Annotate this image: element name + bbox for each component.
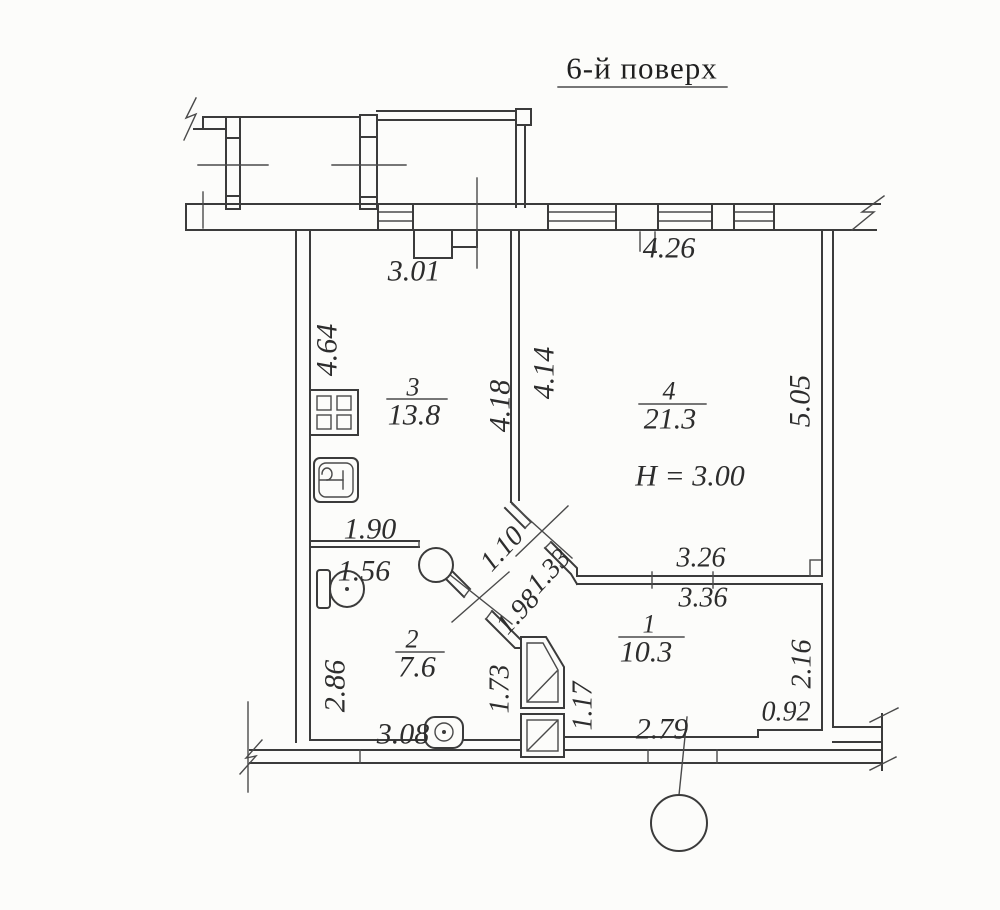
room4-number: 4 [663,377,676,406]
room4-ceiling-height: H = 3.00 [634,460,744,493]
glazing-corner [516,109,531,125]
break-symbol [184,98,196,140]
room3-area: 13.8 [388,399,441,432]
column-circle [419,548,453,582]
floor-plan-drawing: 6-й поверх [0,0,1000,910]
dim-1-73: 1.73 [485,665,516,714]
dim-3-26: 3.26 [676,543,726,574]
dim-2-79: 2.79 [636,713,689,746]
window [734,204,774,230]
dim-5-05: 5.05 [784,375,817,428]
stove-icon [310,390,358,435]
dim-4-26: 4.26 [643,232,696,265]
dim-1-17: 1.17 [568,681,599,731]
dim-4-64: 4.64 [311,324,344,377]
dim-1-90: 1.90 [344,513,397,546]
room2-area: 7.6 [398,651,436,684]
vent-shaft-lower [521,714,564,757]
dim-2-86: 2.86 [319,660,352,713]
dim-3-08: 3.08 [376,718,430,751]
dim-4-14: 4.14 [528,347,561,400]
break-symbol [240,740,262,774]
wall-pilaster [810,560,822,576]
room1-area: 10.3 [620,636,673,669]
break-symbol [852,196,884,230]
balconies [194,109,531,209]
page-title: 6-й поверх [566,51,717,86]
vent-shaft-upper [521,637,564,708]
room2-number: 2 [406,625,419,654]
sink-icon [314,458,358,502]
dim-3-01: 3.01 [387,255,441,288]
balcony-pier [360,115,377,209]
dim-1-10: 1.10 [474,521,530,578]
window [548,204,616,230]
dim-3-36: 3.36 [678,583,728,614]
dim-1-56: 1.56 [338,555,391,588]
dim-4-18: 4.18 [484,380,517,433]
washer-icon [425,717,463,748]
room-labels: 3 13.8 4 21.3 H = 3.00 1 10.3 2 7.6 [387,373,745,684]
room4-area: 21.3 [644,403,697,436]
dim-2-16: 2.16 [787,640,818,689]
floor-plan-page: 6-й поверх [0,0,1000,910]
window [658,204,712,230]
room3-number: 3 [406,373,420,402]
room1-number: 1 [643,610,656,639]
callout-circle [651,795,707,851]
dim-0-92: 0.92 [762,697,811,728]
title-block: 6-й поверх [558,51,727,88]
window [378,204,413,230]
